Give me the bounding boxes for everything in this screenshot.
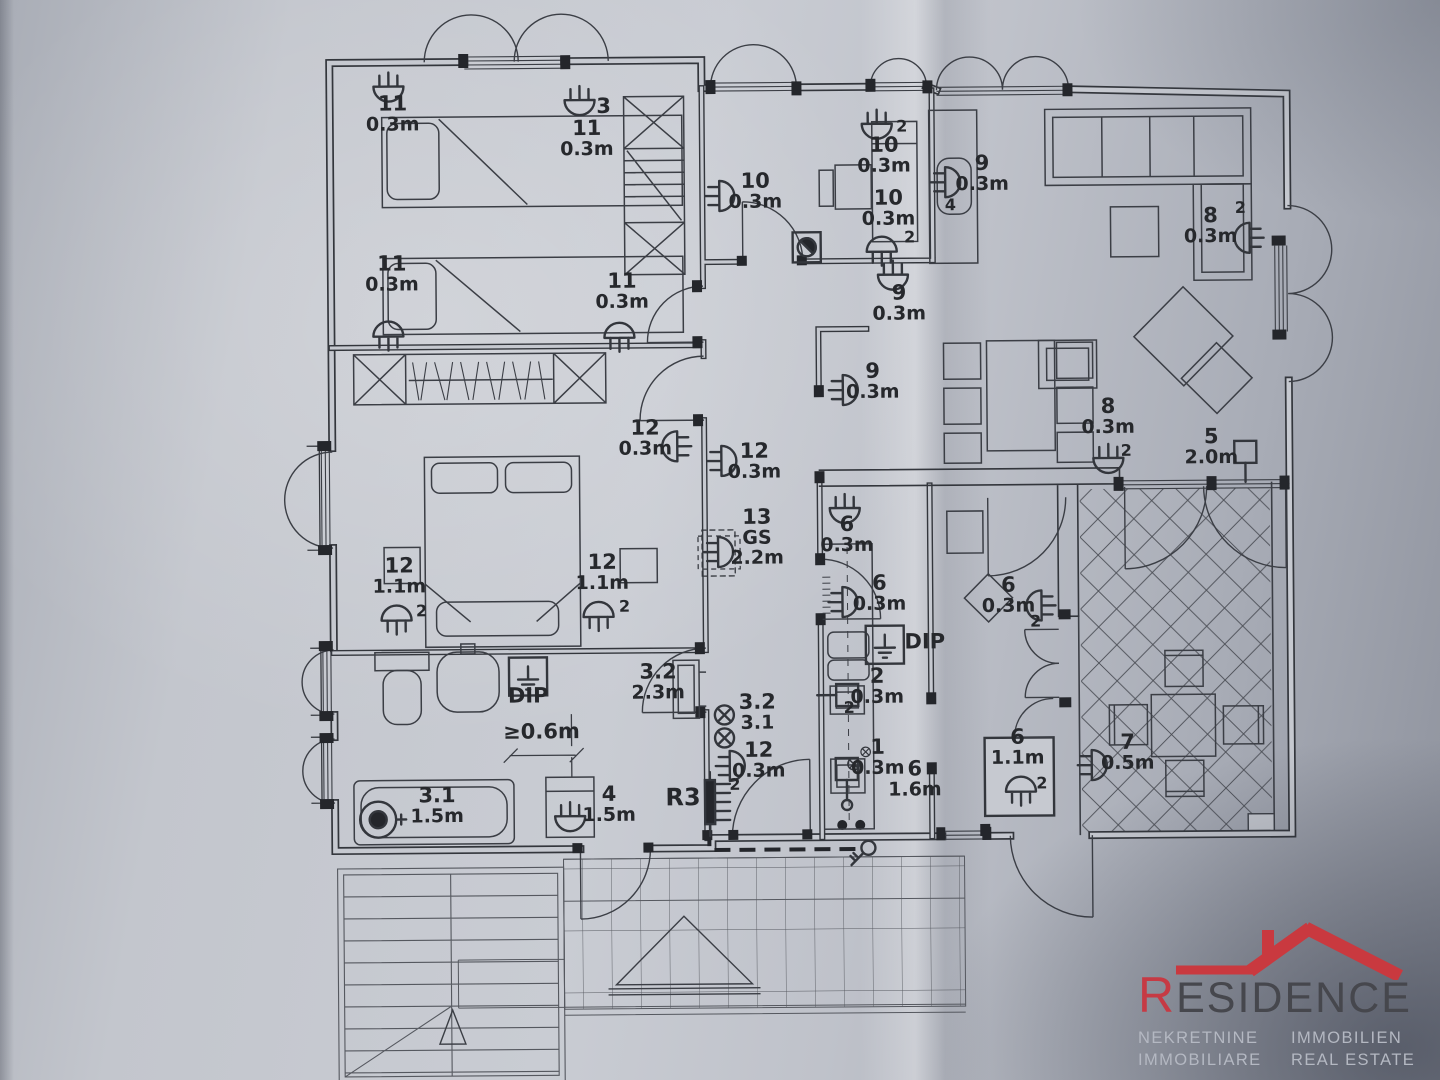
fixture-label: 4: [945, 195, 956, 214]
fixture-label: 110.3m: [560, 116, 614, 160]
fixture-label: 80.3m: [1184, 203, 1238, 247]
brand-rest: ESIDENCE: [1176, 974, 1412, 1022]
fixture-label: 100.3m: [857, 132, 911, 176]
fixture-label: 2: [904, 227, 915, 246]
tagline-nekretnine: NEKRETNINE: [1138, 1029, 1273, 1048]
fixture-label: 2: [729, 775, 740, 794]
drain-icon: [360, 801, 406, 837]
lamp-icon: [583, 602, 613, 631]
fan-icon: [861, 747, 871, 757]
fixture-label: 52.0m: [1184, 424, 1238, 468]
fan-icon: [715, 728, 734, 747]
photographed-floor-plan: 110.3m110.3m3110.3m100.3m2100.3m100.3m29…: [0, 0, 1440, 1080]
fixture-label: 90.3m: [846, 359, 900, 403]
fixture-label: 100.3m: [728, 169, 782, 213]
fixture-label: 2: [1030, 611, 1041, 630]
lamp-icon: [564, 86, 594, 115]
fixture-label: 10.3m: [851, 735, 905, 779]
fixture-label: 2: [416, 601, 427, 620]
fixture-label: 90.3m: [955, 151, 1009, 195]
lamp-icon: [382, 605, 412, 634]
fixture-label: 3.22.3m: [631, 659, 685, 703]
outdoor-paving: [458, 856, 966, 1016]
brand-taglines: NEKRETNINE IMMOBILIEN IMMOBILIARE REAL E…: [1138, 1029, 1426, 1070]
fixture-label: 2: [1036, 773, 1047, 792]
fixture-label: 13GS2.2m: [730, 505, 784, 569]
fixture-label: 120.3m: [618, 415, 672, 459]
fixture-label: 121.1m: [575, 550, 629, 594]
fixture-label: 61.1m: [991, 724, 1045, 768]
fixture-label: 60.3m: [853, 571, 907, 615]
fixture-label: 2: [1235, 198, 1246, 217]
fixture-label: DIP: [508, 683, 549, 707]
fixture-label: 60.3m: [820, 512, 874, 556]
fixture-label: 90.3m: [872, 280, 926, 324]
tagline-realestate: REAL ESTATE: [1291, 1051, 1426, 1070]
lamp-icon: [555, 802, 585, 831]
fixture-label: R3: [665, 783, 700, 811]
fixture-label: 2: [1121, 441, 1132, 460]
fixture-label: 80.3m: [1081, 394, 1135, 438]
fixture-label: 2: [619, 597, 630, 616]
fixture-label: 60.3m: [982, 573, 1036, 617]
residence-logo: RESIDENCE NEKRETNINE IMMOBILIEN IMMOBILI…: [1138, 914, 1426, 1070]
tagline-immobiliare: IMMOBILIARE: [1138, 1051, 1273, 1070]
fixture-label: 110.3m: [366, 91, 420, 135]
fixture-label: 121.1m: [372, 553, 426, 597]
brand-wordmark: RESIDENCE: [1138, 970, 1426, 1021]
fixture-label: 41.5m: [582, 782, 636, 826]
fixture-label: 3.23.1: [739, 690, 777, 734]
fixture-label: DIP: [904, 629, 945, 653]
fixture-label: 3.11.5m: [410, 783, 464, 827]
tagline-immobilien: IMMOBILIEN: [1291, 1029, 1426, 1048]
fixture-label: 3: [596, 94, 611, 118]
fixture-label: 100.3m: [861, 185, 915, 229]
fan-icon: [715, 705, 734, 724]
fixture-label: 120.3m: [727, 439, 781, 483]
staircase: [338, 867, 566, 1080]
brand-initial: R: [1138, 967, 1176, 1023]
fixture-label: ≥0.6m: [503, 719, 580, 744]
equipotential-bonding-icon: [866, 626, 904, 664]
fixture-label: 20.3m: [850, 664, 904, 708]
terrace-hatch: [1078, 482, 1275, 836]
fixture-label: 2: [844, 698, 855, 717]
lamp-icon: [1235, 223, 1264, 253]
